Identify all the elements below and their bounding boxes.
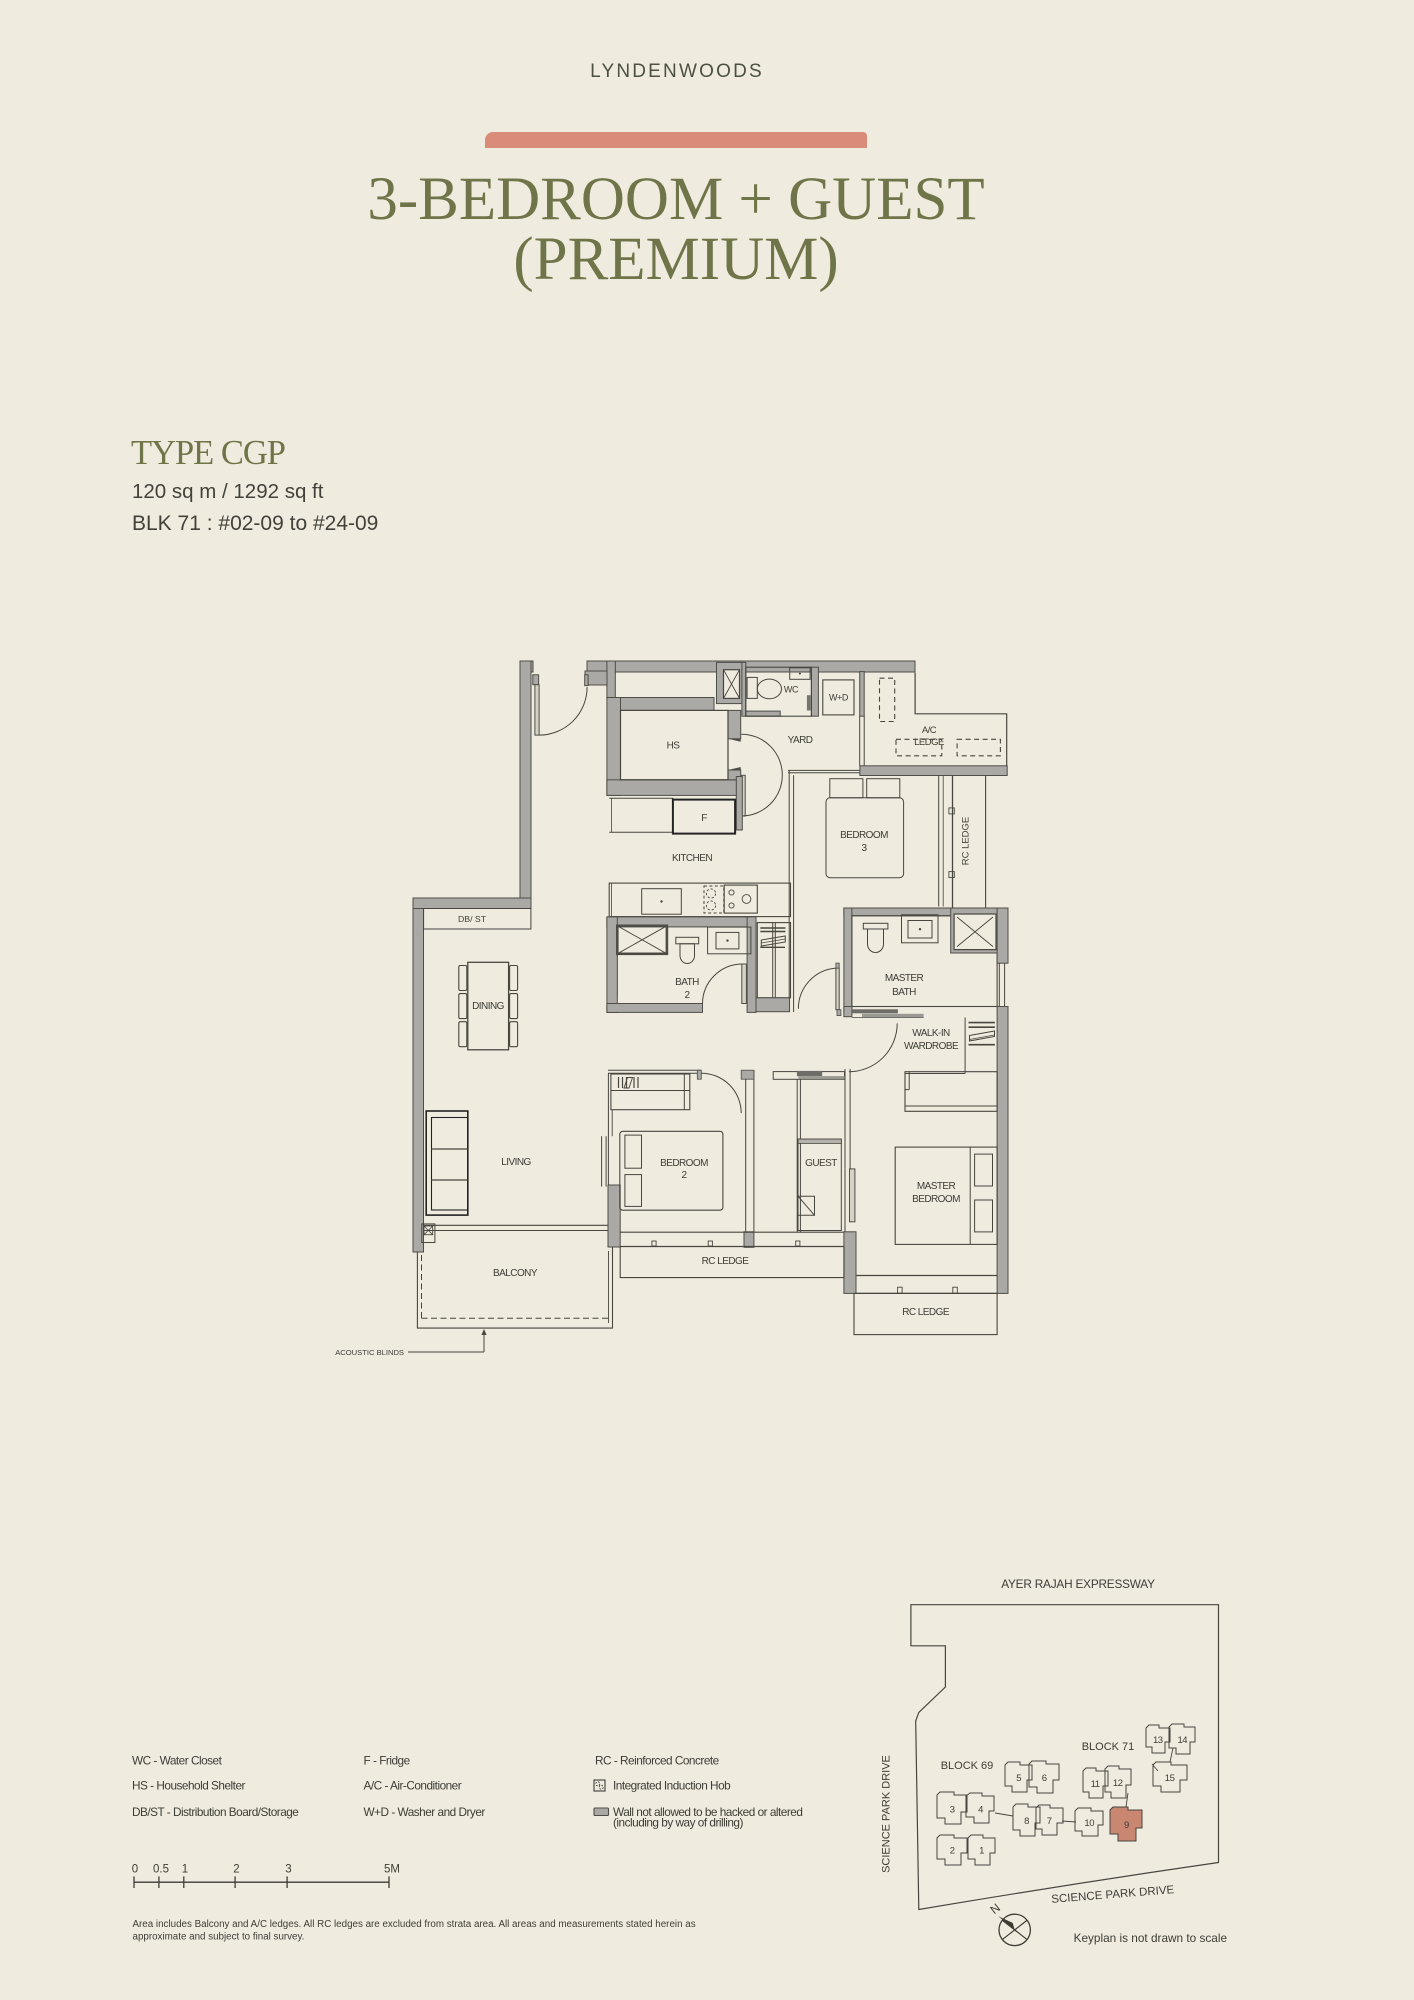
svg-text:7: 7 — [1047, 1816, 1052, 1827]
svg-text:6: 6 — [1042, 1773, 1047, 1784]
svg-text:DB/ ST: DB/ ST — [458, 914, 487, 924]
svg-text:AYER RAJAH EXPRESSWAY: AYER RAJAH EXPRESSWAY — [1001, 1577, 1155, 1591]
svg-text:RC LEDGE: RC LEDGE — [902, 1307, 950, 1318]
svg-text:BATH: BATH — [675, 977, 699, 988]
svg-text:DB/ST - Distribution Board/Sto: DB/ST - Distribution Board/Storage — [132, 1805, 299, 1819]
svg-text:WC - Water Closet: WC - Water Closet — [132, 1754, 223, 1768]
svg-text:0.5: 0.5 — [153, 1864, 169, 1876]
svg-text:F - Fridge: F - Fridge — [364, 1754, 411, 1768]
svg-text:TYPE CGP: TYPE CGP — [131, 434, 285, 472]
svg-text:BALCONY: BALCONY — [493, 1268, 538, 1279]
svg-text:3: 3 — [285, 1864, 291, 1876]
svg-text:A/C: A/C — [922, 725, 937, 736]
svg-text:W+D: W+D — [829, 693, 849, 703]
svg-text:DINING: DINING — [472, 1001, 504, 1012]
svg-text:RC LEDGE: RC LEDGE — [702, 1256, 750, 1267]
svg-text:RC - Reinforced Concrete: RC - Reinforced Concrete — [595, 1754, 720, 1768]
svg-text:1: 1 — [979, 1846, 984, 1857]
svg-text:LYNDENWOODS: LYNDENWOODS — [590, 61, 764, 82]
svg-text:MASTER: MASTER — [917, 1181, 956, 1192]
svg-text:BATH: BATH — [892, 987, 916, 998]
svg-text:GUEST: GUEST — [805, 1158, 837, 1169]
svg-text:14: 14 — [1178, 1735, 1188, 1746]
svg-text:120 sq m / 1292 sq ft: 120 sq m / 1292 sq ft — [132, 480, 324, 503]
svg-text:3-BEDROOM + GUEST: 3-BEDROOM + GUEST — [367, 166, 984, 233]
svg-text:HS: HS — [667, 741, 681, 752]
svg-text:BLOCK 71: BLOCK 71 — [1082, 1741, 1135, 1753]
svg-text:2: 2 — [950, 1846, 955, 1857]
svg-text:10: 10 — [1084, 1818, 1094, 1829]
svg-text:1: 1 — [182, 1864, 188, 1876]
svg-text:BLOCK 69: BLOCK 69 — [941, 1760, 994, 1772]
svg-text:Keyplan is not drawn to scale: Keyplan is not drawn to scale — [1074, 1931, 1228, 1945]
svg-text:MASTER: MASTER — [885, 973, 924, 984]
svg-text:Integrated Induction Hob: Integrated Induction Hob — [613, 1779, 731, 1793]
svg-text:WARDROBE: WARDROBE — [904, 1041, 959, 1052]
svg-text:5M: 5M — [384, 1864, 400, 1876]
svg-text:0: 0 — [132, 1864, 138, 1876]
svg-text:approximate and subject to fin: approximate and subject to final survey. — [133, 1932, 305, 1943]
svg-text:A/C - Air-Conditioner: A/C - Air-Conditioner — [364, 1779, 462, 1793]
svg-text:9: 9 — [1124, 1820, 1129, 1831]
svg-text:Area includes Balcony and A/C: Area includes Balcony and A/C ledges. Al… — [133, 1919, 696, 1930]
svg-text:BLK 71 : #02-09 to #24-09: BLK 71 : #02-09 to #24-09 — [132, 512, 378, 535]
svg-text:WALK-IN: WALK-IN — [912, 1028, 950, 1039]
svg-text:HS - Household Shelter: HS - Household Shelter — [132, 1779, 246, 1793]
svg-text:2: 2 — [233, 1864, 239, 1876]
svg-text:RC LEDGE: RC LEDGE — [961, 817, 972, 866]
svg-text:W+D - Washer and Dryer: W+D - Washer and Dryer — [364, 1805, 486, 1819]
svg-text:SCIENCE PARK DRIVE: SCIENCE PARK DRIVE — [880, 1755, 892, 1873]
svg-text:BEDROOM: BEDROOM — [660, 1158, 708, 1169]
svg-text:3: 3 — [950, 1804, 955, 1815]
svg-text:8: 8 — [1024, 1816, 1029, 1827]
svg-text:(PREMIUM): (PREMIUM) — [513, 226, 838, 293]
svg-text:BEDROOM: BEDROOM — [840, 830, 888, 841]
svg-text:4: 4 — [978, 1804, 983, 1815]
svg-text:LEDGE: LEDGE — [914, 737, 944, 748]
svg-text:YARD: YARD — [788, 735, 813, 746]
svg-text:ACOUSTIC BLINDS: ACOUSTIC BLINDS — [335, 1348, 404, 1357]
svg-text:5: 5 — [1016, 1773, 1021, 1784]
svg-text:12: 12 — [1113, 1778, 1123, 1789]
svg-text:WC: WC — [784, 685, 799, 695]
svg-text:KITCHEN: KITCHEN — [672, 853, 712, 864]
svg-text:(including by way of drilling): (including by way of drilling) — [613, 1816, 743, 1830]
svg-text:13: 13 — [1153, 1735, 1163, 1746]
svg-text:F: F — [701, 813, 707, 824]
svg-text:LIVING: LIVING — [501, 1157, 531, 1168]
svg-text:11: 11 — [1091, 1779, 1100, 1790]
svg-text:15: 15 — [1165, 1773, 1175, 1784]
svg-text:BEDROOM: BEDROOM — [912, 1194, 960, 1205]
